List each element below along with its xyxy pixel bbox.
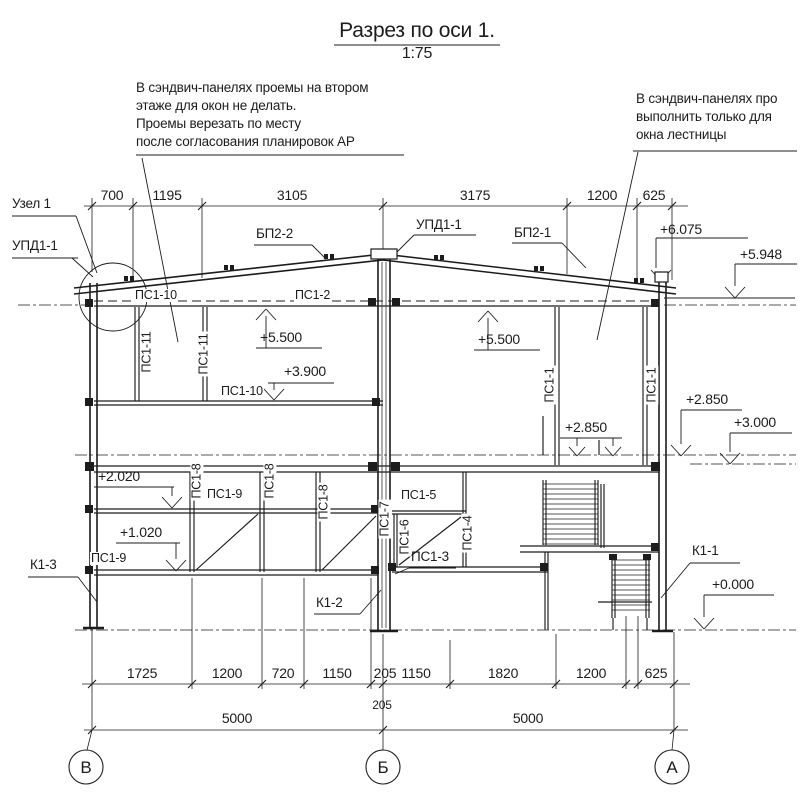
right-eave-block — [655, 272, 668, 282]
dim-axis-5000-left: 5000 — [222, 711, 252, 726]
mark-upd11-left: УПД1-1 — [12, 239, 58, 253]
elevation-0000: +0.000 — [712, 577, 754, 592]
dim-bot-625: 625 — [645, 666, 668, 681]
note-right-line1: В сэндвич-панелях про — [636, 92, 777, 106]
dim-axis-205: 205 — [372, 699, 391, 712]
label-ps1-6: ПС1-6 — [398, 517, 411, 556]
mark-bp22: БП2-2 — [256, 227, 293, 241]
elevation-2850-inner: +2.850 — [565, 420, 607, 435]
middle-column-lattice — [382, 262, 386, 628]
mark-uzel1: Узел 1 — [12, 197, 51, 211]
dim-bot-1725: 1725 — [127, 666, 157, 681]
mark-ps1-3: ПС1-3 — [411, 550, 449, 564]
label-ps1-2: ПС1-2 — [294, 289, 331, 302]
dim-bot-720: 720 — [272, 666, 295, 681]
note-left-line4: после согласования планировок АР — [136, 135, 355, 149]
elevation-1020: +1.020 — [120, 525, 162, 540]
label-ps1-4: ПС1-4 — [461, 513, 474, 552]
mark-bp21: БП2-1 — [514, 226, 551, 240]
elevation-2850-outer: +2.850 — [686, 392, 728, 407]
label-ps1-10-top: ПС1-10 — [134, 289, 178, 302]
dim-bot-1200a: 1200 — [212, 666, 242, 681]
elevation-5500-right: +5.500 — [478, 332, 520, 347]
dim-top-1200: 1200 — [587, 188, 617, 203]
dim-bot-1150b: 1150 — [401, 666, 430, 681]
dim-top-3175: 3175 — [460, 188, 490, 203]
label-ps1-7: ПС1-7 — [378, 499, 391, 538]
section-drawing-sheet: Разрез по оси 1. 1:75 В сэндвич-панелях … — [0, 0, 800, 797]
label-ps1-9-top: ПС1-9 — [206, 488, 243, 501]
dim-top-1195: 1195 — [152, 188, 181, 203]
elevation-2020: +2.020 — [98, 469, 140, 484]
label-ps1-9-bottom: ПС1-9 — [90, 552, 127, 565]
stair-treads — [543, 484, 650, 610]
axis-bubble-v: В — [80, 759, 91, 777]
label-ps1-8-a: ПС1-8 — [190, 461, 203, 500]
label-ps1-1-a: ПС1-1 — [543, 365, 556, 404]
axis-bubble-b: Б — [378, 759, 389, 777]
elevation-3900: +3.900 — [284, 364, 326, 379]
label-ps1-5: ПС1-5 — [400, 489, 437, 502]
mark-k1-2: К1-2 — [316, 596, 343, 610]
drawing-scale: 1:75 — [402, 46, 432, 63]
dim-bot-205: 205 — [374, 666, 397, 681]
dim-bot-1820: 1820 — [488, 666, 518, 681]
dim-top-3105: 3105 — [277, 188, 307, 203]
dim-bot-1200b: 1200 — [576, 666, 606, 681]
label-ps1-1-b: ПС1-1 — [645, 365, 658, 404]
dim-axis-5000-right: 5000 — [513, 711, 543, 726]
label-ps1-8-c: ПС1-8 — [317, 482, 330, 521]
mark-k1-3: К1-3 — [30, 558, 57, 572]
note-right-line3: окна лестницы — [636, 128, 726, 142]
elevation-3000: +3.000 — [734, 415, 776, 430]
mark-upd11-ridge: УПД1-1 — [416, 218, 462, 232]
note-right-line2: выполнить только для — [636, 110, 772, 124]
drawing-title: Разрез по оси 1. — [339, 20, 495, 42]
label-ps1-8-b: ПС1-8 — [263, 461, 276, 500]
note-left-line2: этаже для окон не делать. — [136, 99, 296, 113]
mark-k1-1: К1-1 — [692, 544, 719, 558]
elevation-5948: +5.948 — [740, 247, 782, 262]
label-ps1-11-a: ПС1-11 — [140, 330, 153, 375]
elevation-5500-left: +5.500 — [260, 330, 302, 345]
note-left-line1: В сэндвич-панелях проемы на втором — [136, 81, 368, 95]
ridge-cap — [371, 249, 397, 259]
dim-top-625: 625 — [643, 188, 666, 203]
dim-bot-1150a: 1150 — [322, 666, 351, 681]
dim-top-700: 700 — [101, 188, 124, 203]
label-ps1-11-b: ПС1-11 — [197, 332, 210, 377]
axis-bubble-a: А — [666, 759, 677, 777]
label-ps1-10-mid: ПС1-10 — [220, 385, 264, 398]
note-left-line3: Проемы верезать по месту — [136, 117, 301, 131]
elevation-6075: +6.075 — [660, 222, 702, 237]
